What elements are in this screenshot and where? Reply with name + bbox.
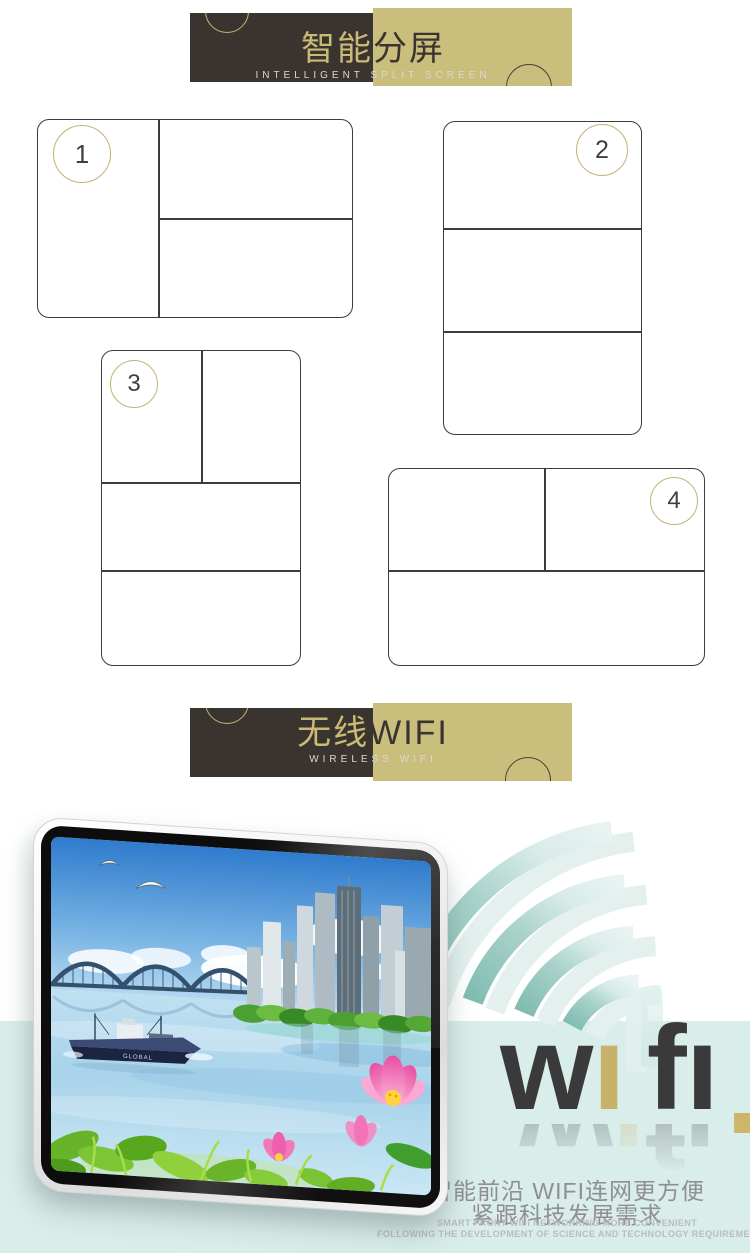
decorative-circle [205, 13, 249, 33]
caption-en-line-2: FOLLOWING THE DEVELOPMENT OF SCIENCE AND… [377, 1229, 750, 1239]
display-screen: GLOBAL [51, 836, 431, 1195]
screen-landscape-image: GLOBAL [51, 836, 431, 1195]
divider-line [389, 570, 704, 572]
product-promo-page: 智能分屏 INTELLIGENT SPLIT SCREEN 1 2 3 4 无线… [0, 0, 750, 1253]
diagram-number-badge: 4 [650, 477, 698, 525]
diagram-number: 1 [75, 139, 89, 170]
decorative-circle [205, 708, 249, 724]
decorative-circle [506, 64, 552, 86]
diagram-number: 3 [127, 370, 140, 398]
banner-split-screen: 智能分屏 INTELLIGENT SPLIT SCREEN [190, 8, 572, 86]
banner-title: 无线WIFI [297, 716, 449, 750]
split-layout-diagram-4: 4 [388, 468, 705, 666]
wifi-letter-i1-glyph: ı [592, 1008, 624, 1128]
divider-line [544, 469, 546, 570]
wifi-letter-f: f [647, 1008, 686, 1128]
banner-title: 智能分屏 [301, 32, 445, 66]
caption-en-line-1: SMART FRONT WIFI NETWORKING MORE CONVENI… [377, 1218, 750, 1228]
display-bezel: GLOBAL [41, 825, 440, 1210]
banner-title-left: 无线 [297, 714, 369, 752]
wifi-gold-dot [734, 1113, 750, 1133]
banner-subtitle: INTELLIGENT SPLIT SCREEN [255, 70, 490, 81]
split-layout-diagram-1: 1 [37, 119, 353, 318]
wifi-letter-i2: ı [686, 1008, 740, 1128]
split-layout-diagram-3: 3 [101, 350, 301, 666]
diagram-number: 4 [667, 487, 680, 515]
banner-title-right: 分屏 [373, 30, 445, 68]
divider-line [102, 570, 300, 572]
diagram-number-badge: 2 [576, 124, 628, 176]
banner-title-left: 智能 [301, 30, 373, 68]
decorative-circle [505, 757, 551, 781]
wifi-letter-i2-glyph: ı [686, 1008, 718, 1128]
diagram-number-badge: 3 [110, 360, 158, 408]
divider-line [444, 228, 641, 230]
wall-mounted-display: GLOBAL [33, 816, 448, 1218]
divider-line [201, 351, 203, 482]
diagram-number-badge: 1 [53, 125, 111, 183]
banner-wireless-wifi: 无线WIFI WIRELESS WIFI [190, 700, 572, 781]
banner-subtitle: WIRELESS WIFI [309, 754, 437, 765]
divider-line [444, 331, 641, 333]
divider-line [158, 218, 352, 220]
split-layout-diagram-2: 2 [443, 121, 642, 435]
divider-line [102, 482, 300, 484]
diagram-number: 2 [595, 136, 609, 165]
wifi-letter-w: w [500, 1008, 592, 1128]
wifi-letter-i1: ı [592, 1008, 646, 1128]
banner-title-right: WIFI [369, 714, 449, 752]
